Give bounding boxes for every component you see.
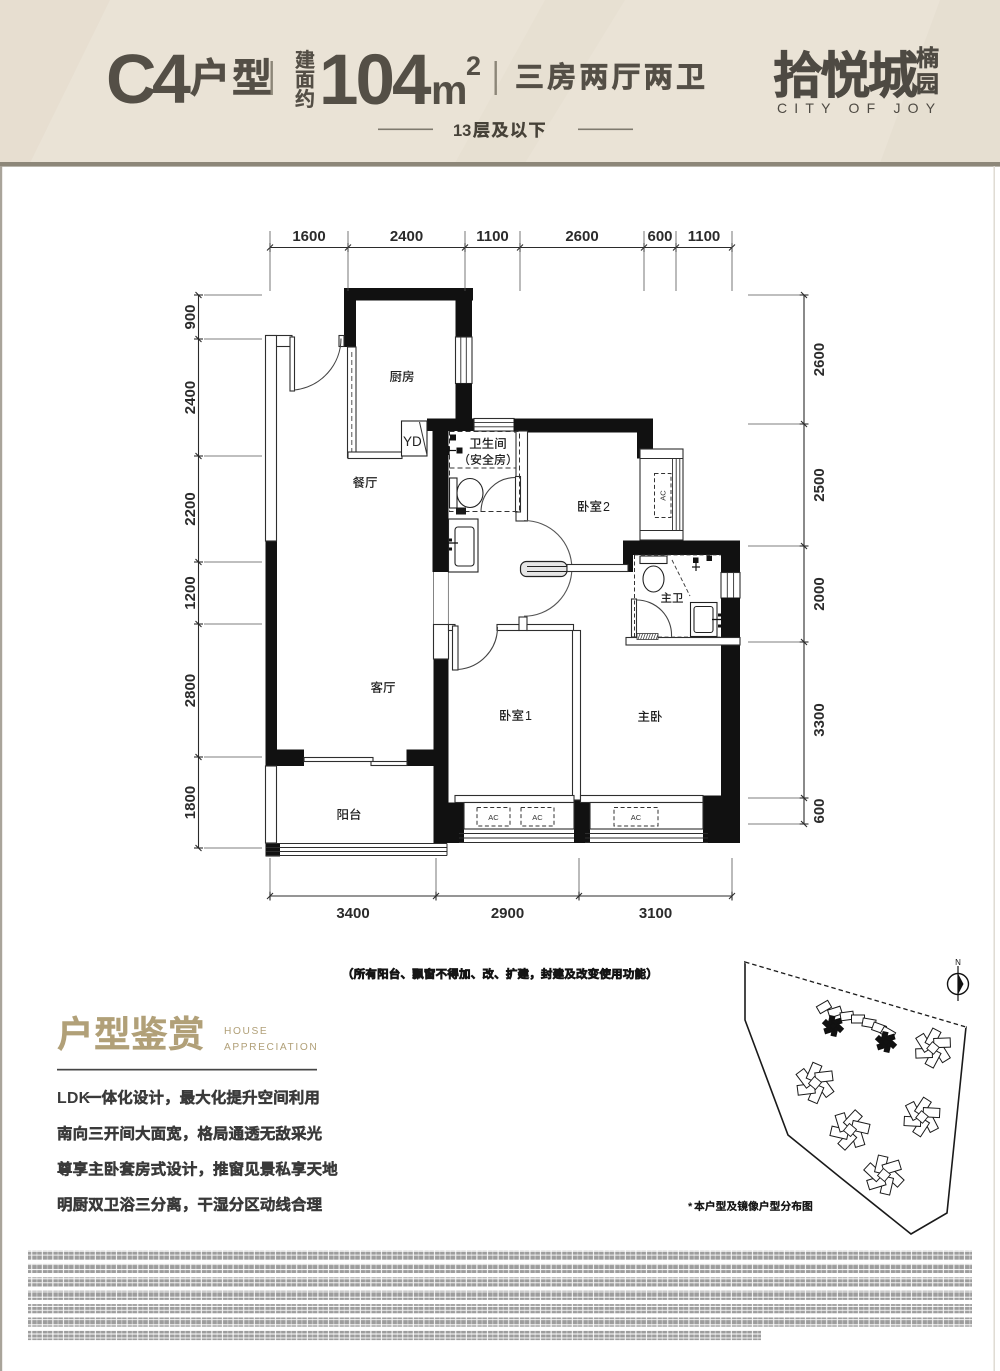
svg-text:2200: 2200 xyxy=(182,492,199,525)
svg-text:2900: 2900 xyxy=(491,905,524,922)
svg-text:N: N xyxy=(955,958,961,967)
svg-text:1200: 1200 xyxy=(182,576,199,609)
svg-text:13: 13 xyxy=(453,122,471,140)
svg-text:1: 1 xyxy=(525,709,532,723)
svg-text:*: * xyxy=(688,1201,693,1213)
svg-text:2000: 2000 xyxy=(811,577,828,610)
svg-text:2600: 2600 xyxy=(565,228,598,245)
svg-text:2400: 2400 xyxy=(390,228,423,245)
svg-text:3300: 3300 xyxy=(811,703,828,736)
svg-text:AC: AC xyxy=(631,813,642,822)
svg-text:APPRECIATION: APPRECIATION xyxy=(224,1042,318,1053)
svg-text:1100: 1100 xyxy=(688,228,721,245)
svg-text:2800: 2800 xyxy=(182,674,199,707)
svg-text:2400: 2400 xyxy=(182,381,199,414)
svg-text:3400: 3400 xyxy=(336,905,369,922)
svg-text:CITY OF JOY: CITY OF JOY xyxy=(777,100,942,116)
svg-text:600: 600 xyxy=(811,798,828,823)
svg-text:1100: 1100 xyxy=(476,228,509,245)
svg-text:AC: AC xyxy=(488,813,499,822)
svg-text:YD: YD xyxy=(403,434,422,449)
svg-text:1600: 1600 xyxy=(292,228,325,245)
svg-text:3100: 3100 xyxy=(639,905,672,922)
svg-text:2: 2 xyxy=(603,500,610,514)
svg-text:AC: AC xyxy=(659,490,668,501)
svg-text:900: 900 xyxy=(182,304,199,329)
svg-text:2500: 2500 xyxy=(811,468,828,501)
svg-text:m: m xyxy=(431,67,467,113)
svg-text:2: 2 xyxy=(466,51,481,81)
svg-text:AC: AC xyxy=(532,813,543,822)
svg-text:C4: C4 xyxy=(106,40,191,118)
svg-text:HOUSE: HOUSE xyxy=(224,1026,268,1037)
svg-text:104: 104 xyxy=(319,41,432,120)
svg-text:600: 600 xyxy=(647,228,672,245)
svg-text:1800: 1800 xyxy=(182,786,199,819)
svg-text:LDK: LDK xyxy=(57,1090,91,1107)
svg-text:2600: 2600 xyxy=(811,343,828,376)
